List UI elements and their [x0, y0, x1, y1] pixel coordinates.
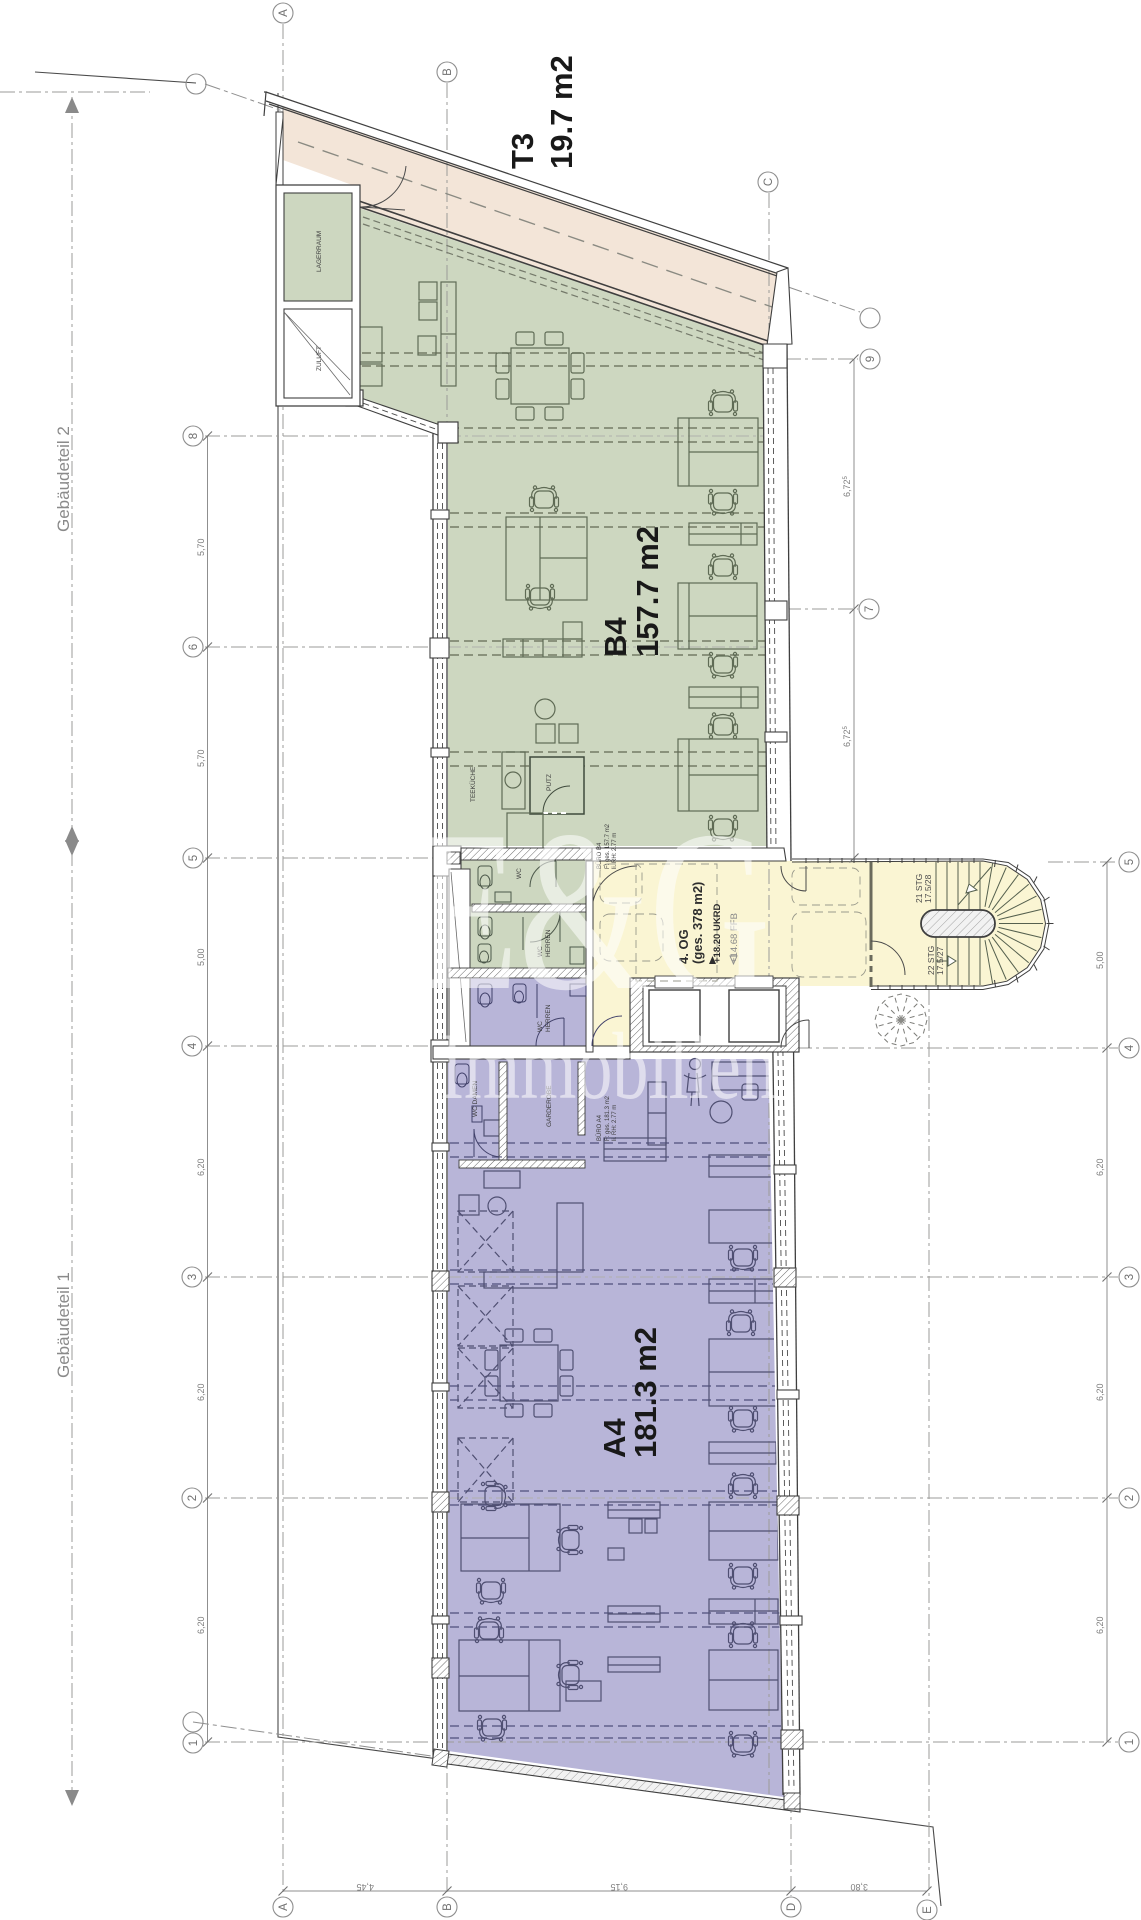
svg-text:B: B	[442, 68, 454, 76]
svg-text:6,20: 6,20	[196, 1383, 206, 1401]
svg-text:6,20: 6,20	[196, 1158, 206, 1176]
svg-text:4: 4	[187, 1042, 199, 1049]
svg-text:C: C	[763, 178, 775, 186]
svg-text:4,45: 4,45	[356, 1882, 374, 1892]
svg-text:E&G: E&G	[416, 784, 770, 1039]
svg-text:19.7 m2: 19.7 m2	[544, 55, 579, 169]
svg-text:D: D	[786, 1903, 798, 1911]
svg-text:4: 4	[1124, 1044, 1136, 1051]
svg-text:A: A	[278, 9, 290, 17]
svg-text:5: 5	[188, 855, 200, 861]
svg-text:Gebäudeteil 2: Gebäudeteil 2	[54, 426, 73, 532]
svg-text:5,00: 5,00	[1095, 951, 1105, 969]
svg-text:E: E	[922, 1906, 934, 1914]
svg-text:9: 9	[865, 356, 877, 362]
svg-text:5,00: 5,00	[196, 948, 206, 966]
svg-text:6,20: 6,20	[1095, 1158, 1105, 1176]
svg-text:8: 8	[188, 433, 200, 439]
svg-text:T3: T3	[505, 133, 540, 169]
svg-text:6,20: 6,20	[196, 1616, 206, 1634]
svg-text:181.3 m2: 181.3 m2	[628, 1327, 663, 1458]
svg-text:Gebäudeteil 1: Gebäudeteil 1	[54, 1272, 73, 1378]
svg-text:A4: A4	[597, 1418, 632, 1458]
svg-text:2: 2	[187, 1495, 199, 1501]
svg-text:6: 6	[188, 644, 200, 650]
svg-text:6,20: 6,20	[1095, 1383, 1105, 1401]
svg-text:17.5/27: 17.5/27	[935, 946, 945, 975]
svg-text:ZULUFT: ZULUFT	[316, 346, 323, 371]
svg-text:B: B	[442, 1903, 454, 1911]
svg-text:2: 2	[1124, 1495, 1136, 1501]
svg-text:6,20: 6,20	[1095, 1616, 1105, 1634]
svg-text:Immobilien: Immobilien	[440, 1015, 777, 1120]
svg-text:9,15: 9,15	[610, 1882, 628, 1892]
svg-text:157.7 m2: 157.7 m2	[630, 526, 665, 657]
svg-text:A: A	[278, 1903, 290, 1911]
svg-text:B4: B4	[598, 617, 633, 657]
svg-text:17.5/28: 17.5/28	[923, 874, 933, 903]
svg-text:1: 1	[1124, 1739, 1136, 1745]
svg-text:5,70: 5,70	[196, 749, 206, 767]
svg-text:LAGERRAUM: LAGERRAUM	[316, 231, 323, 272]
svg-text:5: 5	[1124, 859, 1136, 865]
svg-text:3: 3	[1124, 1274, 1136, 1280]
svg-text:5,70: 5,70	[196, 538, 206, 556]
svg-text:3: 3	[187, 1274, 199, 1280]
svg-text:3,80: 3,80	[850, 1882, 868, 1892]
svg-text:1: 1	[188, 1740, 200, 1746]
svg-text:7: 7	[864, 606, 876, 612]
